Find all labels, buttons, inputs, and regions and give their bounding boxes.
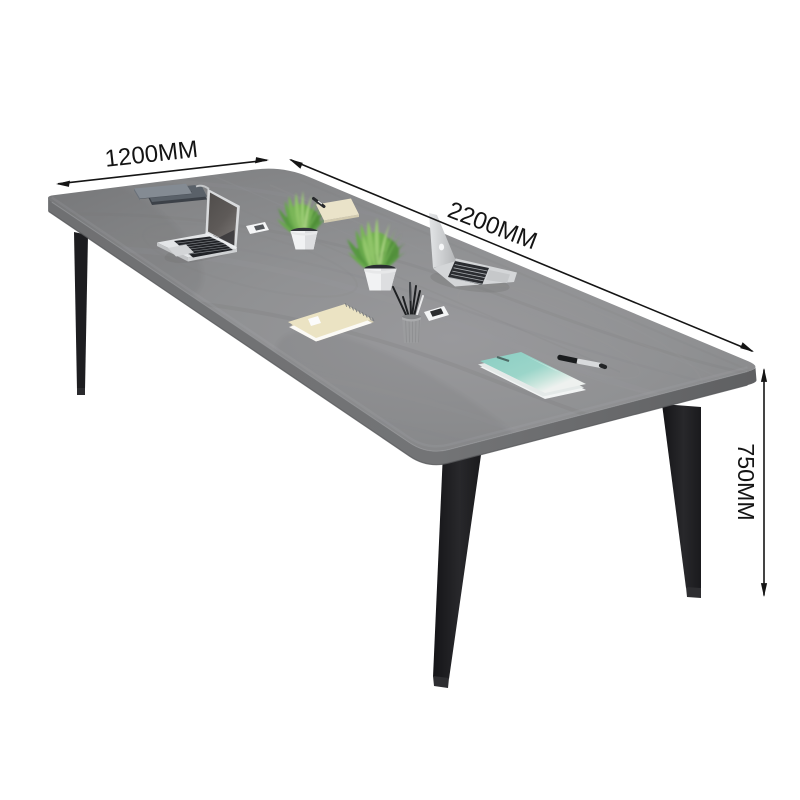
svg-text:750MM: 750MM bbox=[733, 443, 759, 520]
